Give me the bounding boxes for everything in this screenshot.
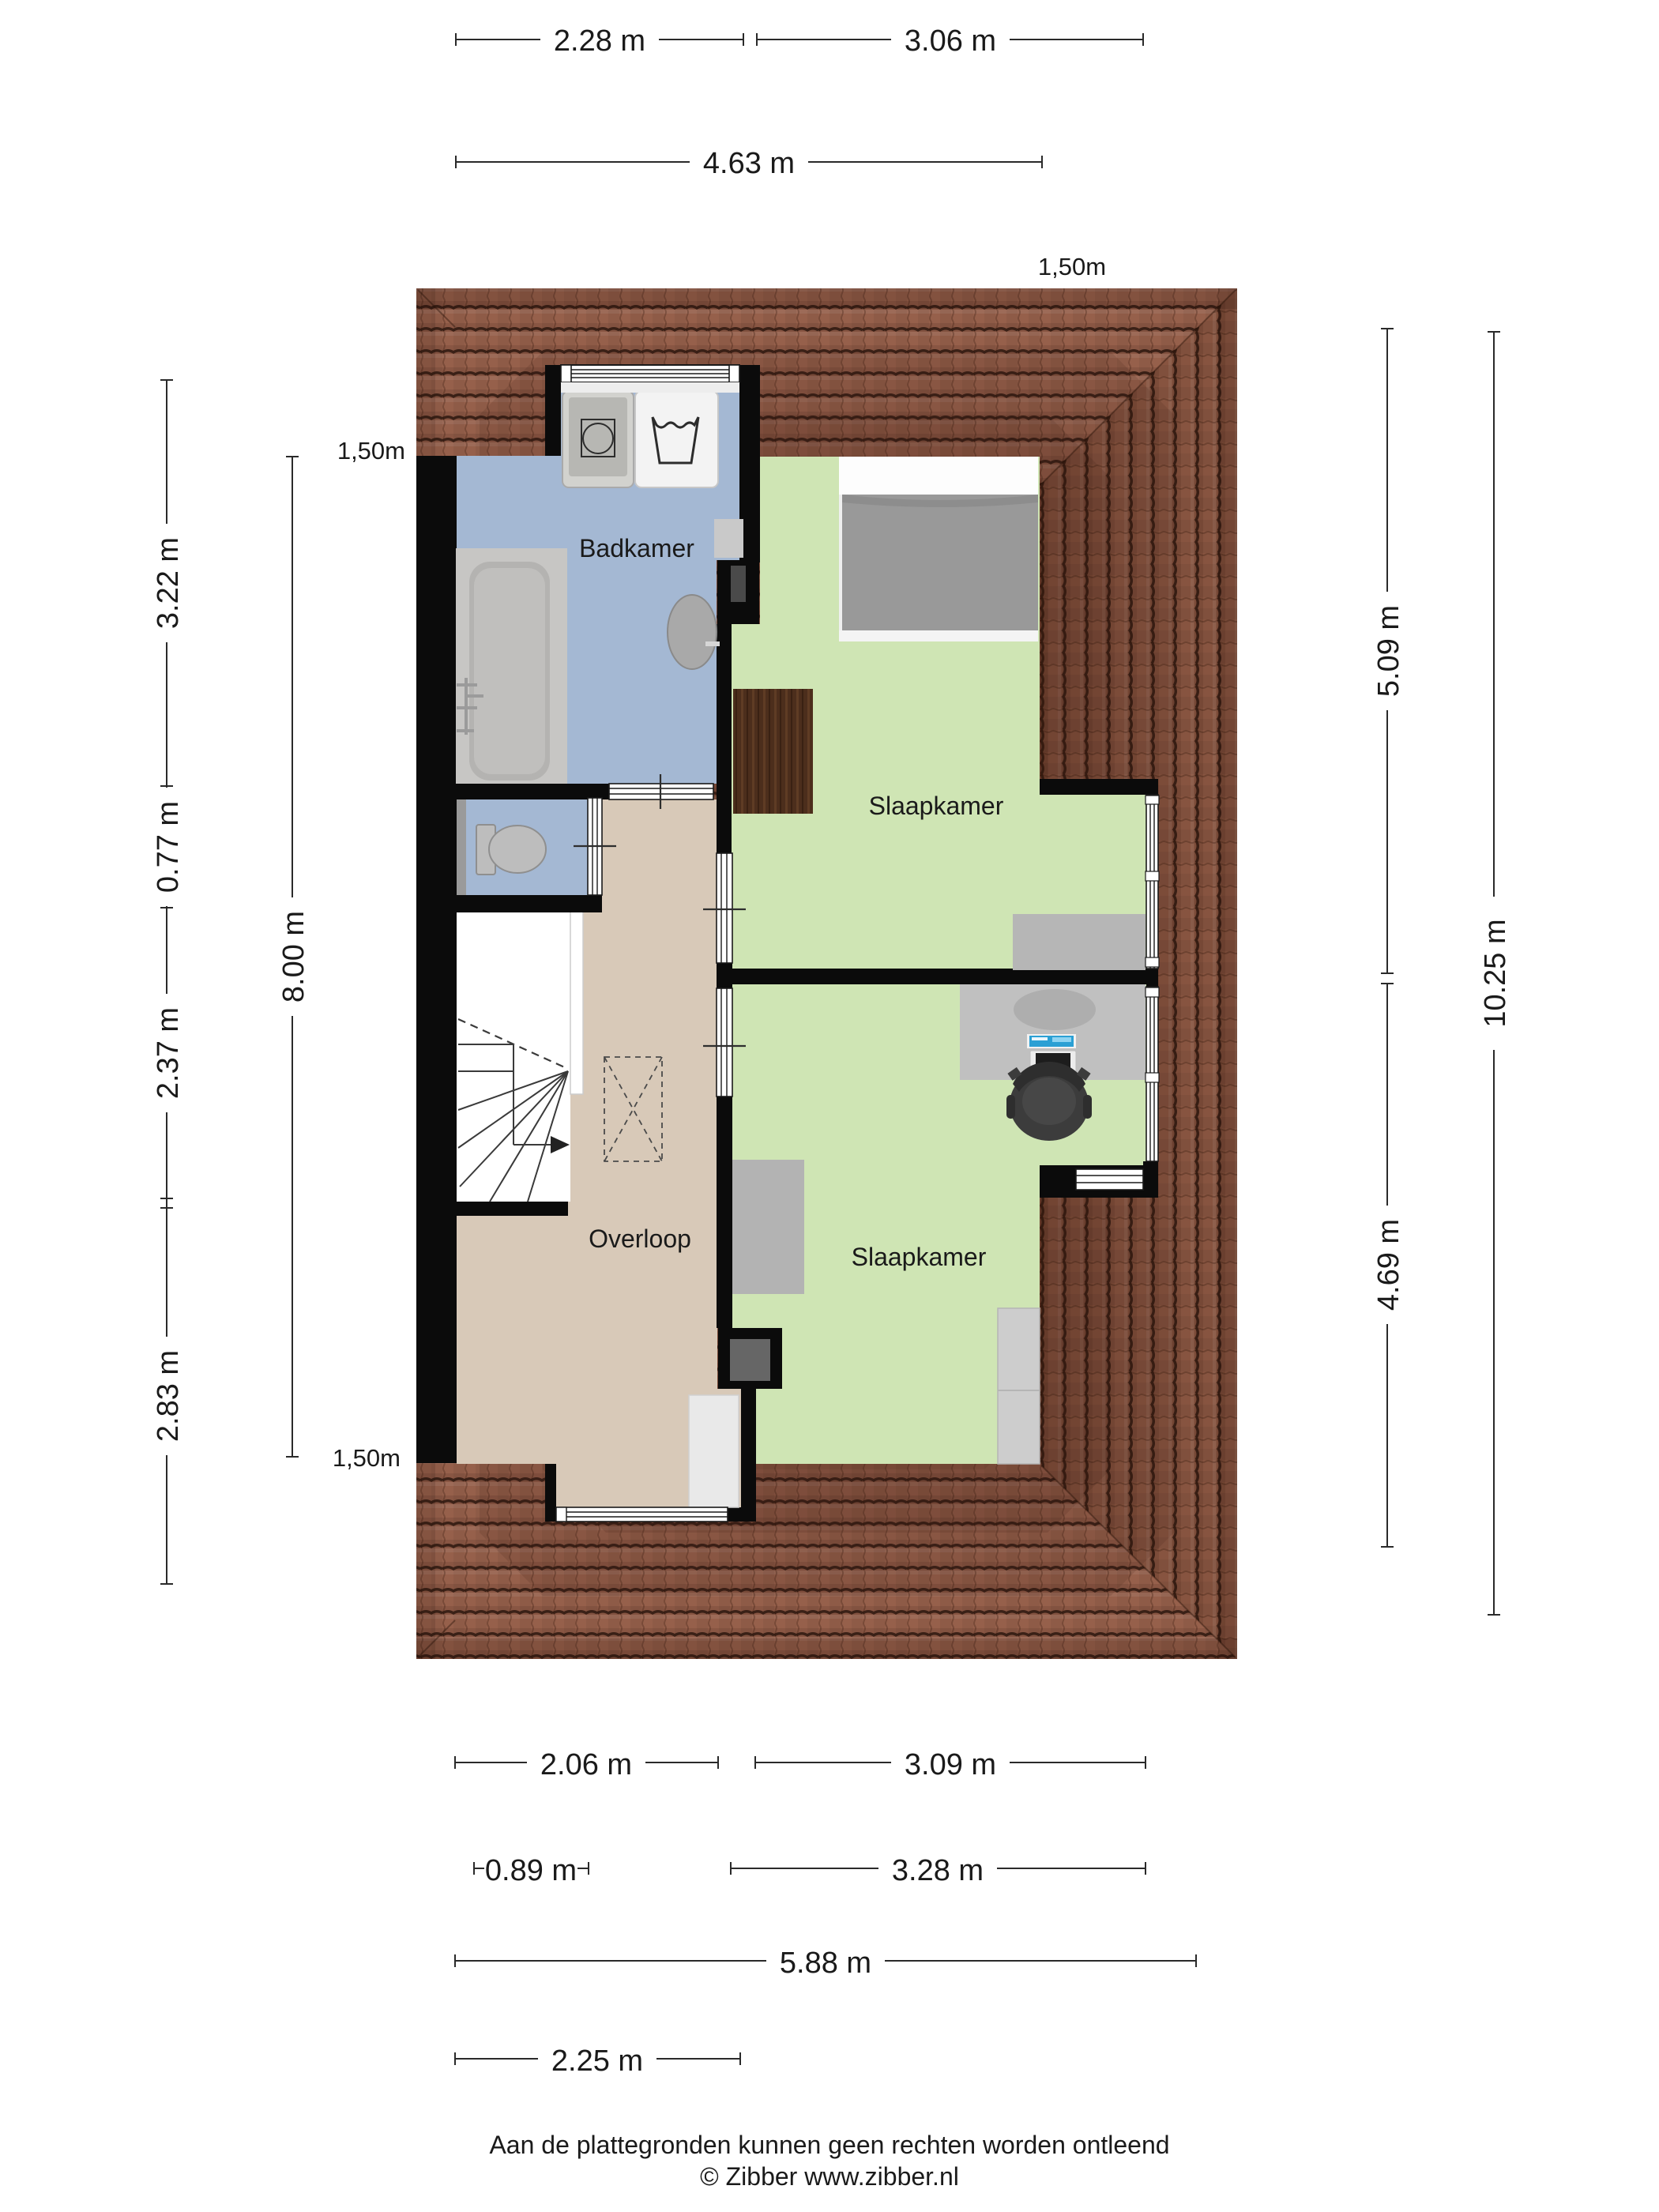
svg-text:2.25 m: 2.25 m: [551, 2045, 643, 2078]
svg-text:5.88 m: 5.88 m: [780, 1947, 871, 1980]
svg-text:10.25 m: 10.25 m: [1479, 919, 1512, 1027]
svg-text:Badkamer: Badkamer: [579, 534, 694, 562]
svg-text:0.89 m: 0.89 m: [485, 1854, 577, 1887]
svg-text:Slaapkamer: Slaapkamer: [869, 792, 1004, 820]
svg-text:2.37 m: 2.37 m: [152, 1007, 185, 1099]
svg-text:2.83 m: 2.83 m: [152, 1350, 185, 1442]
svg-text:1,50m: 1,50m: [337, 437, 405, 465]
svg-text:3.28 m: 3.28 m: [892, 1854, 984, 1887]
svg-text:1,50m: 1,50m: [1038, 253, 1106, 280]
svg-text:3.09 m: 3.09 m: [905, 1748, 996, 1781]
svg-text:4.63 m: 4.63 m: [703, 147, 795, 180]
svg-text:2.28 m: 2.28 m: [554, 24, 645, 58]
svg-text:4.69 m: 4.69 m: [1372, 1219, 1405, 1311]
svg-text:3.06 m: 3.06 m: [905, 24, 996, 58]
svg-text:1,50m: 1,50m: [333, 1444, 401, 1472]
svg-text:Slaapkamer: Slaapkamer: [852, 1243, 987, 1271]
svg-text:0.77 m: 0.77 m: [152, 801, 185, 893]
svg-text:5.09 m: 5.09 m: [1372, 605, 1405, 697]
svg-text:Overloop: Overloop: [589, 1224, 691, 1253]
svg-text:8.00 m: 8.00 m: [277, 911, 310, 1003]
svg-text:2.06 m: 2.06 m: [540, 1748, 632, 1781]
svg-text:3.22 m: 3.22 m: [152, 537, 185, 629]
svg-text:© Zibber www.zibber.nl: © Zibber www.zibber.nl: [700, 2162, 959, 2191]
svg-text:Aan de plattegronden kunnen ge: Aan de plattegronden kunnen geen rechten…: [489, 2131, 1169, 2159]
